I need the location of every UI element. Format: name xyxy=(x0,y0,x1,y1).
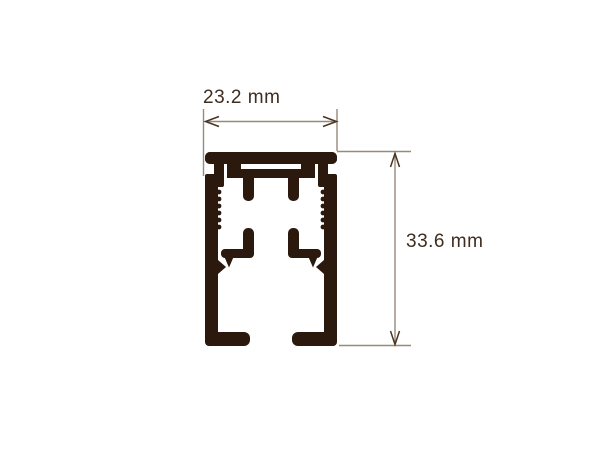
rail-profile-cross-section xyxy=(205,152,337,346)
height-dimension: 33.6 mm xyxy=(337,152,483,346)
width-dimension-label: 23.2 mm xyxy=(203,87,280,108)
diagram-canvas: 23.2 mm 33.6 mm xyxy=(0,0,610,450)
profile-right-half xyxy=(205,152,337,346)
height-dimension-label: 33.6 mm xyxy=(406,231,483,252)
cross-section-drawing: 23.2 mm 33.6 mm xyxy=(0,0,610,450)
profile-detent-bump xyxy=(218,260,226,274)
profile-side-wall xyxy=(205,176,218,346)
profile-left-half xyxy=(205,152,337,346)
profile-bottom-arm xyxy=(205,332,250,346)
profile-hook-tooth xyxy=(224,256,234,268)
height-dimension-lines xyxy=(337,152,411,346)
